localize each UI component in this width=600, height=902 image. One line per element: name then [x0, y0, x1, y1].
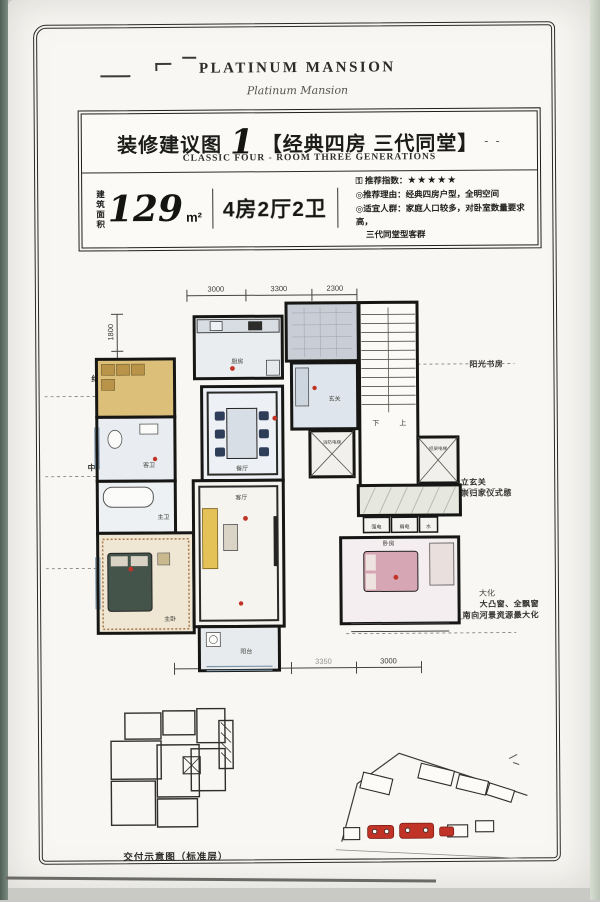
svg-text:1800: 1800	[106, 324, 115, 341]
foyer-label: 玄关	[329, 395, 341, 403]
shaft-weak-label: 弱电	[400, 523, 410, 530]
area-unit: m²	[186, 210, 202, 229]
shaft-water-label: 水	[426, 523, 431, 530]
area-value: 129	[108, 191, 183, 228]
reason-line: ◎推荐理由：经典四房户型，全明空间	[356, 188, 528, 202]
floor-plan: 3000 3300 2300 1800 3140 2100 2000 450 4…	[44, 266, 557, 712]
audience-line1: ◎适宜人群：家庭人口较多，对卧室数量要求高，	[356, 201, 528, 229]
key-plan-caption: 交付示意图（标准层）	[91, 848, 261, 863]
room-layout: 4房2厅2卫	[223, 193, 327, 224]
master-bedroom-label: 主卧	[164, 615, 176, 623]
photo-of-brochure: PLATINUM MANSION Platinum Mansion 装修建议图 …	[0, 0, 600, 900]
recommendation-block: ⚿ 推荐指数：★★★★★ ◎推荐理由：经典四房户型，全明空间 ◎适宜人群：家庭人…	[348, 172, 528, 241]
living-label: 客厅	[235, 493, 247, 501]
print-mark	[182, 57, 196, 59]
kitchen-label: 厨房	[231, 357, 243, 365]
decor-title-row: 装修建议图 1 【经典四房 三代同堂】 - - CLASSIC FOUR - R…	[82, 111, 537, 173]
title-dashes: - -	[484, 134, 501, 148]
title-subtitle-en: CLASSIC FOUR - ROOM THREE GENERATIONS	[82, 151, 537, 164]
area-label-line2: 面积	[96, 209, 105, 229]
title-info-box: 装修建议图 1 【经典四房 三代同堂】 - - CLASSIC FOUR - R…	[81, 110, 539, 248]
area-label-line1: 建筑	[96, 189, 105, 209]
dining-label: 餐厅	[236, 464, 248, 472]
divider	[337, 188, 338, 228]
svg-text:3000: 3000	[380, 656, 397, 665]
master-bath-label: 主卫	[157, 513, 169, 521]
svg-text:3350: 3350	[315, 657, 332, 666]
corridor	[358, 485, 460, 516]
divider	[212, 189, 213, 229]
svg-text:3300: 3300	[270, 284, 287, 293]
guest-bath-label: 客卫	[143, 461, 155, 469]
svg-text:3000: 3000	[207, 285, 224, 294]
key-icon: ⚿	[356, 174, 363, 188]
shaft-strong-label: 强电	[372, 523, 382, 530]
info-row: 建筑 面积 129 m² 4房2厅2卫 ⚿ 推荐指数：★★★★★ ◎推荐理由：经…	[82, 170, 537, 245]
stairs-up-label: 上	[399, 418, 406, 427]
balcony-label: 阳台	[240, 647, 252, 655]
room-top-bath	[286, 303, 358, 362]
svg-text:2300: 2300	[326, 284, 343, 293]
site-plan	[327, 740, 533, 891]
audience-line2: 三代同堂型客群	[356, 227, 528, 241]
stairs-down-label: 下	[372, 419, 379, 427]
bedroom-2-label: 卧房	[383, 539, 395, 547]
built-area: 建筑 面积 129 m²	[92, 188, 202, 230]
rating-stars: ★★★★★	[407, 175, 457, 186]
rating-line: ⚿ 推荐指数：★★★★★	[356, 172, 528, 189]
key-plan	[87, 700, 263, 851]
area-label: 建筑 面积	[96, 189, 105, 230]
rating-label: 推荐指数：	[365, 175, 408, 185]
room-guest-bath	[97, 417, 175, 482]
